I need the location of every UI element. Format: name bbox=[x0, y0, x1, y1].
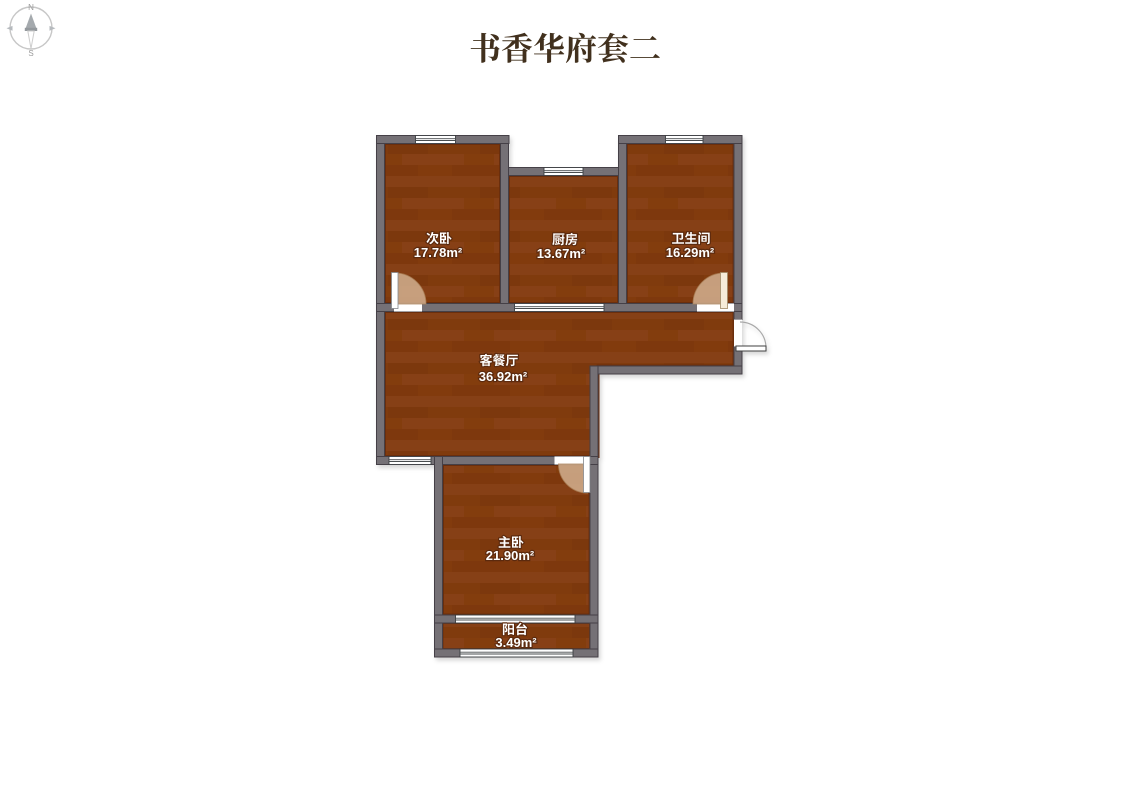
svg-text:21.90m²: 21.90m² bbox=[486, 548, 535, 563]
svg-text:16.29m²: 16.29m² bbox=[666, 245, 715, 260]
svg-text:S: S bbox=[28, 49, 33, 58]
svg-text:N: N bbox=[28, 3, 34, 12]
svg-text:36.92m²: 36.92m² bbox=[479, 369, 528, 384]
svg-text:13.67m²: 13.67m² bbox=[537, 246, 586, 261]
svg-text:3.49m²: 3.49m² bbox=[495, 635, 537, 650]
svg-text:17.78m²: 17.78m² bbox=[414, 245, 463, 260]
